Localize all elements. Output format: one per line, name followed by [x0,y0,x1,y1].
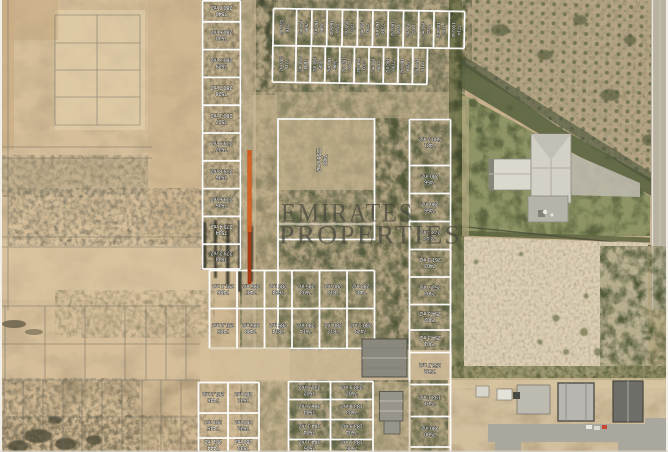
svg-text:279.4 m2: 279.4 m2 [211,223,233,229]
svg-text:280 m2: 280 m2 [235,438,252,444]
svg-text:281 m2: 281 m2 [204,418,221,424]
svg-text:285 m2: 285 m2 [269,321,286,327]
svg-text:280.6 m2: 280.6 m2 [211,4,233,10]
svg-text:160 m2: 160 m2 [344,21,349,37]
svg-text:160 m2: 160 m2 [390,21,395,37]
svg-text:160 m2: 160 m2 [400,58,405,74]
svg-text:160 m2: 160 m2 [329,20,334,36]
svg-text:231.9 m2: 231.9 m2 [299,383,321,389]
svg-text:279.9 m2: 279.9 m2 [211,140,233,146]
svg-text:122 m2: 122 m2 [279,20,284,36]
svg-text:160 m2: 160 m2 [385,58,390,74]
svg-text:280.3 m2: 280.3 m2 [211,56,233,62]
svg-text:280 m2: 280 m2 [324,282,341,288]
svg-text:281 m2: 281 m2 [204,438,221,444]
svg-text:279.8 m2: 279.8 m2 [211,168,233,174]
svg-text:280 m2: 280 m2 [352,282,369,288]
svg-text:280.2 m2: 280.2 m2 [211,84,233,90]
svg-text:500.2 m2: 500.2 m2 [419,135,441,141]
svg-text:160 m2: 160 m2 [312,57,317,73]
svg-text:183.9 m2: 183.9 m2 [341,422,363,428]
svg-text:183.1 m2: 183.1 m2 [341,439,363,445]
svg-text:100 m2: 100 m2 [451,22,456,38]
svg-text:100 m2: 100 m2 [436,22,441,38]
svg-text:238.9 m2: 238.9 m2 [341,383,363,389]
svg-text:285 m2: 285 m2 [269,282,286,288]
svg-text:280 m2: 280 m2 [421,200,438,206]
svg-text:253.7 m2: 253.7 m2 [419,361,441,367]
svg-text:280 m2: 280 m2 [235,391,252,397]
svg-text:285 m2: 285 m2 [297,282,314,288]
svg-text:280 m2: 280 m2 [235,418,252,424]
svg-text:PROPERTIES: PROPERTIES [279,221,462,250]
svg-text:254.3 m2: 254.3 m2 [419,334,441,340]
svg-text:280.1 m2: 280.1 m2 [350,321,372,327]
svg-text:160 m2: 160 m2 [414,59,419,75]
svg-text:160 m2: 160 m2 [356,58,361,74]
svg-text:253.7 m2: 253.7 m2 [419,284,441,290]
svg-text:160 m2: 160 m2 [298,20,303,36]
svg-text:160 m2: 160 m2 [314,20,319,36]
svg-text:160 m2: 160 m2 [341,57,346,73]
svg-text:281.2 m2: 281.2 m2 [202,391,224,397]
svg-text:183.8 m2: 183.8 m2 [341,402,363,408]
svg-text:186.9 m2: 186.9 m2 [299,402,321,408]
svg-text:261.3 m2: 261.3 m2 [419,256,441,262]
svg-text:160 m2: 160 m2 [370,58,375,74]
svg-text:160 m2: 160 m2 [405,22,410,38]
svg-text:283 m2: 283 m2 [279,56,284,72]
svg-text:2298.6 m2: 2298.6 m2 [315,148,321,172]
svg-text:291.1 m2: 291.1 m2 [212,282,234,288]
svg-text:279.6 m2: 279.6 m2 [211,195,233,201]
svg-text:160 m2: 160 m2 [298,57,303,73]
svg-text:184.1 m2: 184.1 m2 [299,439,321,445]
svg-text:280.6 m2: 280.6 m2 [211,29,233,35]
svg-text:254.3 m2: 254.3 m2 [419,310,441,316]
svg-text:184.1 m2: 184.1 m2 [299,422,321,428]
svg-text:GROUP: GROUP [281,251,333,265]
svg-text:193.1 m2: 193.1 m2 [419,393,441,399]
svg-text:291.2 m2: 291.2 m2 [212,321,234,327]
svg-text:280 m2: 280 m2 [421,425,438,431]
svg-text:280.1 m2: 280.1 m2 [211,112,233,118]
svg-text:285 m2: 285 m2 [242,321,259,327]
svg-text:160 m2: 160 m2 [359,21,364,37]
svg-text:280 m2: 280 m2 [421,172,438,178]
svg-text:279.2 m2: 279.2 m2 [211,249,233,255]
svg-text:160 m2: 160 m2 [327,57,332,73]
svg-text:280 m2: 280 m2 [324,321,341,327]
svg-text:160 m2: 160 m2 [421,22,426,38]
svg-text:280 m2: 280 m2 [297,321,314,327]
svg-text:160 m2: 160 m2 [375,21,380,37]
